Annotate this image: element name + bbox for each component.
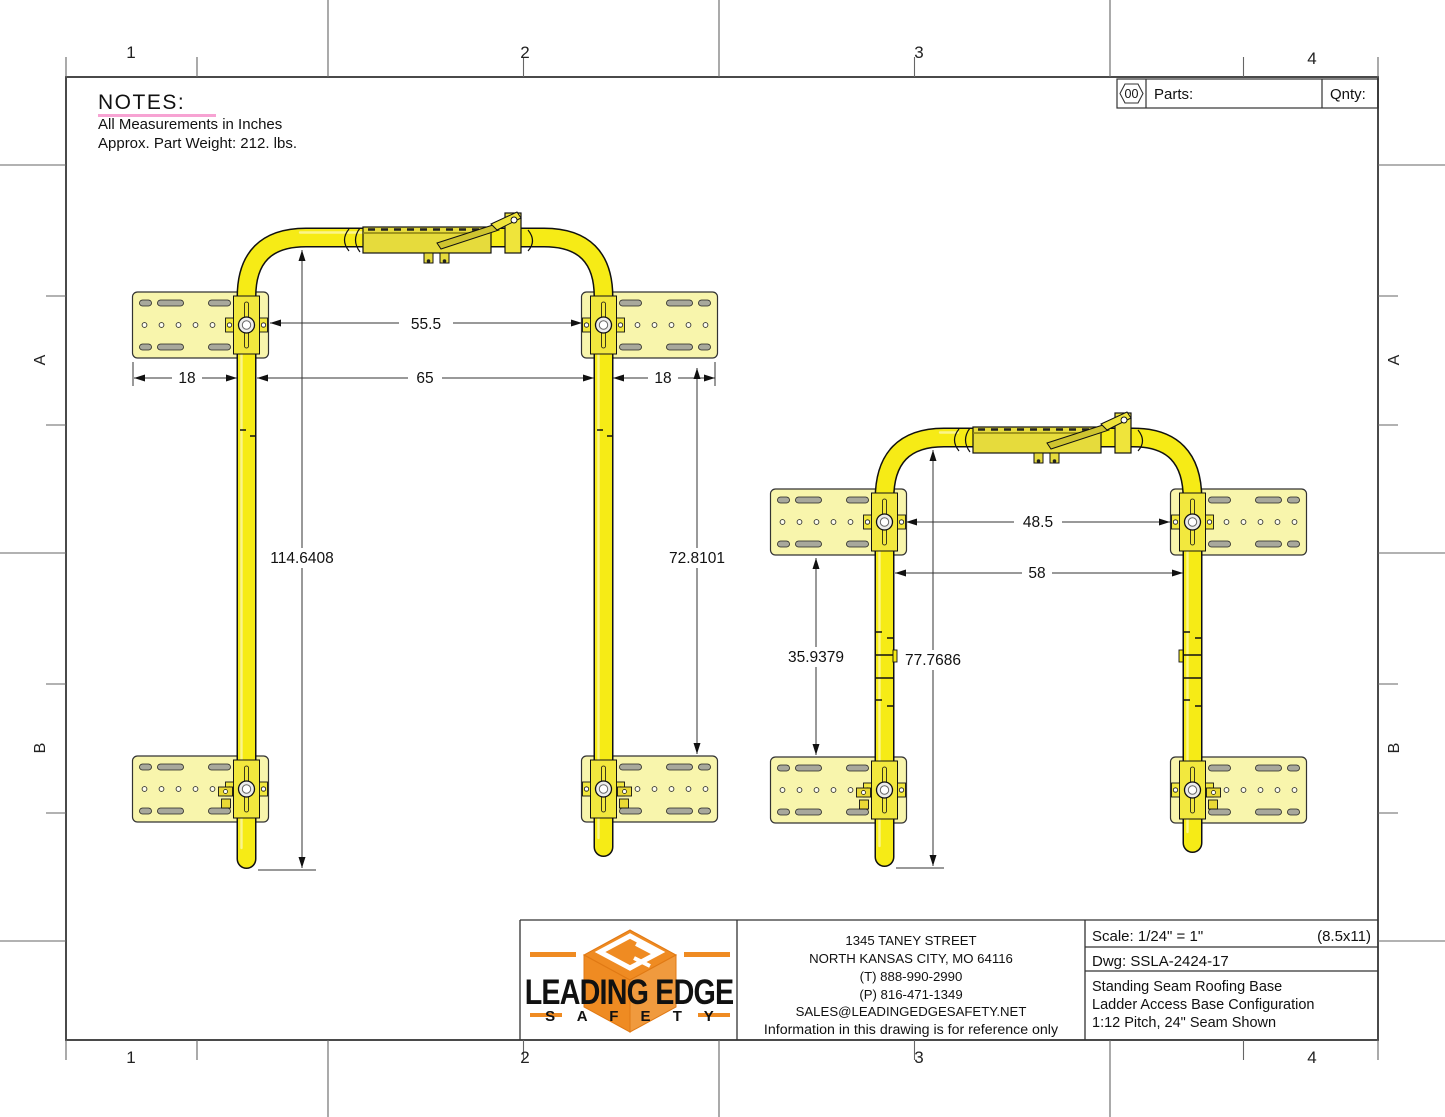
dim-total-height: 77.7686 bbox=[905, 652, 961, 669]
zone-col-4-bottom: 4 bbox=[1307, 1048, 1316, 1067]
tube-outline bbox=[885, 438, 1193, 858]
zone-row-a-left: A bbox=[32, 354, 49, 365]
zone-col-2-top: 2 bbox=[520, 43, 529, 62]
zone-col-3-bottom: 3 bbox=[914, 1048, 923, 1067]
scale-label: Scale: 1/24" = 1" bbox=[1092, 928, 1203, 945]
zone-col-3-top: 3 bbox=[914, 43, 923, 62]
zone-col-1-bottom: 1 bbox=[126, 1048, 135, 1067]
notes-line-1: All Measurements in Inches bbox=[98, 116, 282, 133]
notes-line-2: Approx. Part Weight: 212. lbs. bbox=[98, 135, 297, 152]
address-line-1: 1345 TANEY STREET bbox=[845, 933, 976, 948]
zone-row-b-right: B bbox=[1386, 743, 1403, 754]
company-logo: LEADING EDGE S A F E T Y bbox=[525, 930, 734, 1032]
qnty-label: Qnty: bbox=[1330, 86, 1366, 103]
notes-title: NOTES: bbox=[98, 91, 185, 114]
tube-fill bbox=[885, 438, 1193, 858]
address-line-2: NORTH KANSAS CITY, MO 64116 bbox=[809, 951, 1013, 966]
dim-total-height: 114.6408 bbox=[270, 550, 334, 567]
logo-text-safety: S A F E T Y bbox=[545, 1008, 723, 1025]
description-line-1: Standing Seam Roofing Base bbox=[1092, 979, 1282, 995]
logo-text-main: LEADING EDGE bbox=[525, 972, 734, 1011]
dim-width-between-plates: 48.5 bbox=[1023, 514, 1053, 531]
sheet-size: (8.5x11) bbox=[1317, 928, 1371, 945]
zone-col-1-top: 1 bbox=[126, 43, 135, 62]
zone-col-2-bottom: 2 bbox=[520, 1048, 529, 1067]
company-address: 1345 TANEY STREET NORTH KANSAS CITY, MO … bbox=[764, 933, 1059, 1038]
zone-row-b-left: B bbox=[32, 743, 49, 754]
revision-badge-text: 00 bbox=[1125, 87, 1139, 101]
notes-block: NOTES: All Measurements in Inches Approx… bbox=[98, 91, 297, 152]
description-line-3: 1:12 Pitch, 24" Seam Shown bbox=[1092, 1015, 1276, 1031]
drawing-info: Scale: 1/24" = 1" (8.5x11) Dwg: SSLA-242… bbox=[1092, 928, 1371, 1031]
parts-header: 00 Parts: Qnty: bbox=[1117, 79, 1378, 108]
dim-inner-width: 65 bbox=[416, 370, 433, 387]
dim-right-height: 72.8101 bbox=[669, 550, 725, 567]
right-structure-view: 48.5 58 35.9379 77.7686 bbox=[771, 412, 1307, 868]
zone-row-a-right: A bbox=[1386, 354, 1403, 365]
tube-splice-marks bbox=[240, 430, 613, 436]
title-block: LEADING EDGE S A F E T Y 1345 TANEY STRE… bbox=[520, 920, 1378, 1040]
parts-label: Parts: bbox=[1154, 86, 1193, 103]
left-structure-view: 55.5 18 65 18 114.6408 72.8101 bbox=[133, 212, 731, 870]
dim-left-height: 35.9379 bbox=[788, 649, 844, 666]
dim-inner-width: 58 bbox=[1028, 565, 1045, 582]
zone-col-4-top: 4 bbox=[1307, 49, 1316, 68]
dwg-number: Dwg: SSLA-2424-17 bbox=[1092, 953, 1229, 970]
address-line-5: SALES@LEADINGEDGESAFETY.NET bbox=[796, 1004, 1027, 1019]
address-line-4: (P) 816-471-1349 bbox=[859, 987, 962, 1002]
address-line-3: (T) 888-990-2990 bbox=[860, 969, 963, 984]
dim-left-plate-width: 18 bbox=[178, 370, 195, 387]
tube-highlight bbox=[880, 433, 1188, 847]
drawing-sheet: 1 2 3 4 1 2 3 4 A B A B NOTES: All Measu… bbox=[0, 0, 1445, 1117]
cad-drawing: 1 2 3 4 1 2 3 4 A B A B NOTES: All Measu… bbox=[0, 0, 1445, 1117]
reference-disclaimer: Information in this drawing is for refer… bbox=[764, 1022, 1059, 1038]
dim-width-between-plates: 55.5 bbox=[411, 316, 441, 333]
description-line-2: Ladder Access Base Configuration bbox=[1092, 997, 1314, 1013]
dim-right-plate-width: 18 bbox=[654, 370, 671, 387]
